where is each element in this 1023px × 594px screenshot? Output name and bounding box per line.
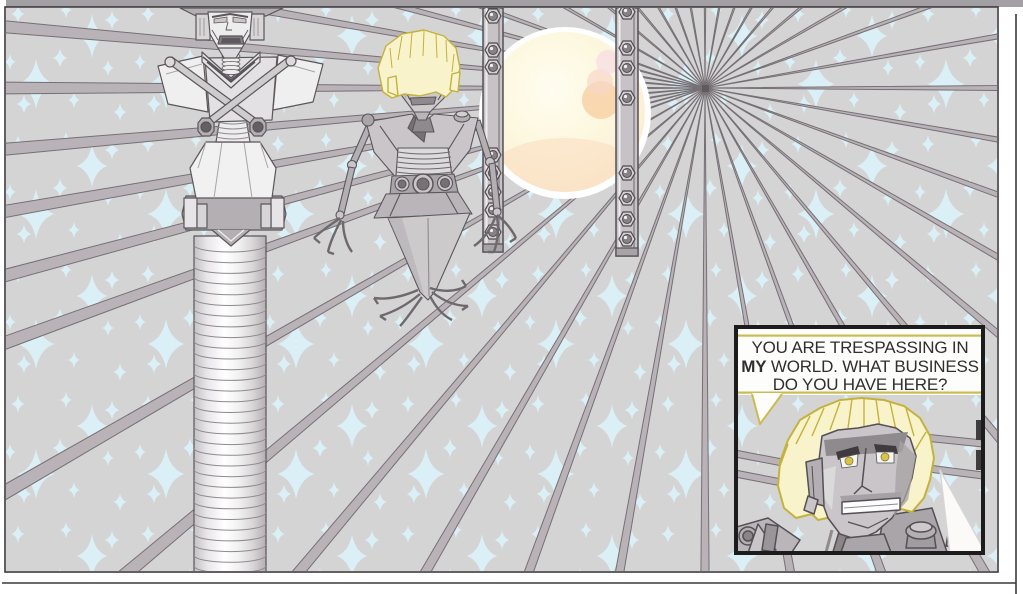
ray-convergence-point (702, 85, 709, 92)
riveted-strut-right (616, 5, 638, 256)
page-top-strip (6, 0, 1023, 7)
speech-bubble-text: YOU ARE TRESPASSING IN MY WORLD. WHAT BU… (737, 339, 983, 395)
bubble-line-1: YOU ARE TRESPASSING IN (737, 339, 983, 358)
comic-artwork (0, 0, 1023, 594)
bubble-line-3: DO YOU HAVE HERE? (737, 376, 983, 395)
comic-panel-page: YOU ARE TRESPASSING IN MY WORLD. WHAT BU… (0, 0, 1023, 594)
bubble-line-2: MY WORLD. WHAT BUSINESS (737, 358, 983, 377)
statue-column (194, 236, 266, 573)
